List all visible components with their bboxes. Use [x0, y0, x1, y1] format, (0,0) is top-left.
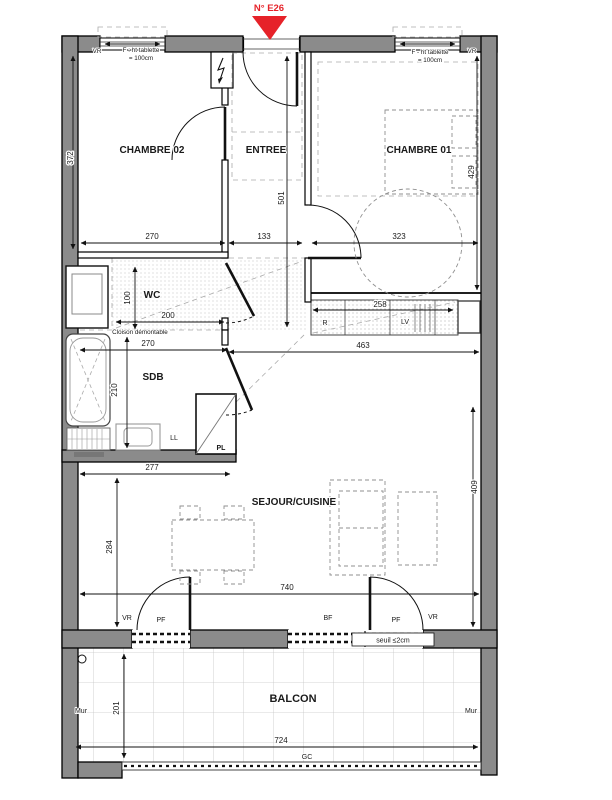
label-mur-right: Mur: [465, 708, 478, 715]
doors: [137, 52, 423, 630]
kitchen-counter: [311, 300, 480, 335]
dim-chambre01-h: 429: [467, 165, 476, 179]
dim-entree-h: 501: [277, 191, 286, 205]
unit-number: N° E26: [254, 3, 284, 14]
interior-walls: [78, 52, 481, 450]
note-tablette-left-2: = 100cm: [129, 55, 153, 62]
window-chambre01: [393, 27, 462, 50]
seuil-note: seuil ≤2cm: [376, 638, 410, 645]
floor-plan-page: N° E26: [0, 0, 612, 800]
label-pf-left: PF: [157, 617, 166, 624]
note-tablette-right-2: = 100cm: [418, 57, 442, 64]
label-fridge: R: [322, 320, 327, 327]
balcony-railing: [122, 762, 481, 770]
chair: [224, 506, 244, 519]
bed-pillow: [452, 116, 476, 148]
dim-chambre02-h: 372: [66, 151, 75, 165]
label-bf: BF: [324, 615, 333, 622]
dim-chambre02-w: 270: [145, 232, 159, 241]
label-dishwasher: LV: [401, 319, 409, 326]
bathtub: [66, 334, 110, 426]
dim-sejour-h: 409: [470, 480, 479, 494]
dim-entree-w: 133: [257, 232, 271, 241]
chair: [224, 571, 244, 584]
sofa: [330, 480, 385, 575]
washbasin: [116, 424, 160, 450]
dining-table: [172, 520, 254, 570]
label-chambre01: CHAMBRE 01: [386, 145, 451, 156]
dim-sejour-left-w: 277: [145, 463, 159, 472]
balcony-drain-icon: [78, 655, 86, 663]
note-cloison: Cloison démontable: [112, 329, 168, 336]
label-mur-left: Mur: [75, 708, 88, 715]
dim-balcon-w: 724: [274, 736, 288, 745]
entrance-opening: [243, 37, 300, 51]
dim-sdb-h: 210: [110, 383, 119, 397]
label-washer: LL: [170, 435, 178, 442]
label-closet: PL: [217, 445, 227, 452]
note-tablette-left: F : ht tablette: [123, 47, 160, 54]
label-sdb: SDB: [142, 372, 163, 383]
label-gc: GC: [302, 754, 313, 761]
label-chambre02: CHAMBRE 02: [119, 145, 184, 156]
chair: [180, 506, 200, 519]
note-tablette-right: F - ht tablette: [411, 49, 449, 56]
label-vr-bottom-right: VR: [428, 614, 438, 621]
entrance-marker: N° E26: [252, 3, 287, 40]
label-wc: WC: [144, 290, 161, 301]
entree-dashed-zone: [232, 53, 302, 180]
electrical-panel: [211, 52, 233, 88]
dim-sejour-w: 740: [280, 583, 294, 592]
note-vr-right: VR: [468, 48, 477, 55]
label-pf-right: PF: [392, 617, 401, 624]
label-entree: ENTREE: [246, 145, 287, 156]
label-vr-bottom-left: VR: [122, 615, 132, 622]
dim-chambre01-w: 323: [392, 232, 406, 241]
dim-wc-h: 100: [123, 291, 132, 305]
sofa-2: [398, 492, 437, 565]
dim-kitchen-w: 258: [373, 300, 387, 309]
floor-plan-drawing: N° E26: [0, 0, 612, 800]
kitchen-sink: [458, 301, 480, 333]
dim-hall-kitchen-w: 463: [356, 341, 370, 350]
label-balcon: BALCON: [269, 693, 316, 705]
note-vr-left: VR: [93, 48, 102, 55]
dim-sdb-w: 270: [141, 339, 155, 348]
wc-toilet: [66, 266, 108, 328]
label-sejour: SEJOUR/CUISINE: [252, 497, 337, 508]
dim-sejour-left-h: 284: [105, 540, 114, 554]
dim-wc-w: 200: [161, 311, 175, 320]
chambre01-zone: [318, 62, 478, 196]
entrance-arrow-icon: [252, 16, 287, 40]
dim-balcon-h: 201: [112, 701, 121, 715]
